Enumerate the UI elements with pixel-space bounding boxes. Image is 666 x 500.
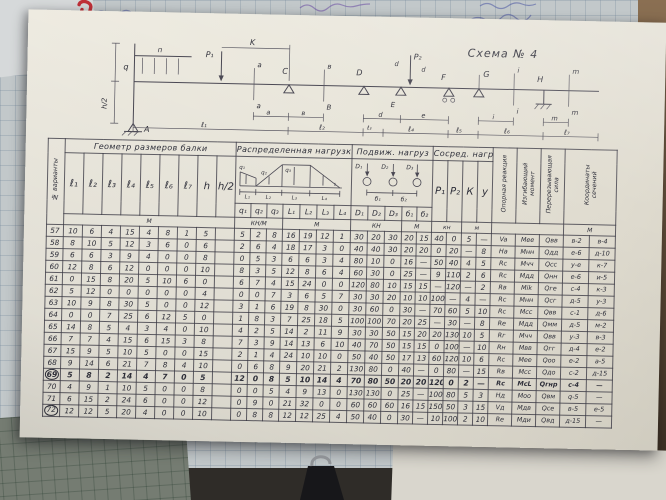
cell: 12 — [316, 230, 333, 242]
cell: 15 — [81, 273, 100, 285]
cell: 0 — [100, 285, 119, 297]
cell: 5 — [138, 298, 157, 310]
cell: 15 — [156, 335, 175, 347]
cell: — — [586, 416, 612, 429]
cell: 30 — [400, 304, 415, 316]
cell: 40 — [431, 232, 446, 244]
cell: 2 — [331, 362, 348, 374]
cell: 5 — [196, 227, 215, 239]
cell: 4 — [156, 323, 175, 335]
cell: е-2 — [561, 355, 587, 368]
cell: 50 — [382, 327, 399, 339]
cell: 8 — [158, 227, 177, 239]
cell: 0 — [62, 273, 81, 285]
concentrated-col-label: у — [477, 161, 493, 222]
cell: 60 — [347, 399, 364, 411]
cell: Rг — [489, 330, 513, 342]
cell: 10 — [196, 263, 215, 275]
cell: с-2 — [561, 367, 587, 380]
cell: 15 — [194, 347, 213, 359]
distributed-col-label: L₃ — [317, 205, 334, 219]
cell: 12 — [120, 262, 139, 274]
cell: 20 — [446, 245, 461, 257]
cell: 4 — [99, 333, 118, 345]
cell: 1 — [249, 301, 265, 313]
cell: 50 — [431, 256, 446, 268]
cell: 16 — [282, 229, 299, 241]
cell: 4 — [264, 349, 280, 361]
cell: 100 — [444, 341, 459, 353]
cell: 0 — [247, 373, 263, 385]
cell: 20 — [383, 291, 400, 303]
cell: 40 — [365, 351, 382, 363]
variant-number: 63 — [49, 298, 58, 307]
svg-text:d: d — [421, 66, 426, 74]
cell: 30 — [349, 291, 366, 303]
cell: 2 — [248, 325, 264, 337]
cell: Rс — [491, 270, 515, 283]
cell: 20 — [367, 231, 384, 243]
cell: 100 — [430, 292, 445, 304]
cell: м-2 — [588, 320, 614, 333]
cell: 0 — [384, 255, 401, 267]
cell: 0 — [429, 364, 444, 376]
cell: — — [473, 377, 488, 389]
cell: Rв — [490, 282, 514, 294]
cell: — — [413, 388, 428, 400]
cell: 21 — [118, 358, 137, 370]
svg-text:e: e — [421, 112, 425, 120]
cell: е-6 — [563, 271, 589, 284]
cell: 8 — [193, 384, 212, 396]
svg-text:L₃: L₃ — [291, 195, 297, 201]
cell: 70 — [430, 304, 445, 316]
cell: 5 — [460, 305, 475, 317]
variant-number: 72 — [44, 405, 58, 416]
cell: 10 — [157, 275, 176, 287]
svg-text:P₁: P₁ — [206, 50, 214, 59]
cell: 4 — [139, 226, 158, 238]
svg-text:А: А — [143, 125, 150, 134]
distributed-col-label: L₂ — [300, 205, 317, 219]
cell: 0 — [330, 386, 347, 398]
cell: 0 — [177, 239, 196, 251]
cell: 9 — [264, 337, 280, 349]
cell: 100 — [428, 388, 443, 400]
variant-number: 65 — [48, 322, 57, 331]
cell: 8 — [100, 273, 119, 285]
cell: 0 — [446, 233, 461, 245]
cell: 12 — [282, 265, 299, 277]
cell: 10 — [63, 225, 82, 237]
distributed-load-sketch: q₁ q₂ q₃ L₁ L₂ L₃ L₄ — [237, 157, 350, 201]
cell: 14 — [117, 370, 136, 383]
cell: 4 — [333, 266, 350, 278]
cell: 4 — [265, 277, 281, 289]
cell: 8 — [63, 237, 82, 249]
cell: Мвв — [513, 342, 537, 355]
cell: 0 — [330, 398, 347, 410]
cell: 20 — [429, 328, 444, 340]
cell: 130 — [347, 387, 364, 399]
cell: 0 — [231, 396, 247, 408]
geometry-col-label: ℓ₂ — [83, 153, 103, 214]
geometry-col-label: ℓ₃ — [102, 153, 122, 214]
cell: 10 — [459, 353, 474, 365]
cell: 50 — [443, 401, 458, 413]
svg-text:D₃: D₃ — [406, 164, 414, 171]
cell: 4 — [175, 359, 194, 371]
cell: у-3 — [561, 331, 587, 344]
cell: 120 — [444, 353, 459, 365]
cell: 7 — [281, 313, 298, 325]
cell: 70 — [365, 339, 382, 351]
svg-text:б₁: б₁ — [375, 196, 382, 203]
cell: 0 — [383, 303, 400, 315]
cell: 5 — [474, 329, 489, 341]
cell: 15 — [79, 393, 98, 405]
svg-text:m: m — [572, 68, 579, 76]
cell: 10 — [459, 329, 474, 341]
cell: 5 — [138, 274, 157, 286]
cell: 7 — [249, 277, 265, 289]
variant-number: 60 — [49, 262, 58, 271]
concentrated-col-label: P₂ — [447, 161, 463, 222]
row-number: 60 — [46, 260, 63, 272]
svg-text:ℓ₁: ℓ₁ — [200, 121, 207, 129]
cell: 15 — [281, 277, 298, 289]
cell: 8 — [475, 317, 490, 329]
svg-text:a: a — [256, 102, 260, 110]
cell: 70 — [383, 315, 400, 327]
cell: 15 — [118, 334, 137, 346]
cell: 0 — [138, 286, 157, 298]
rotated-header: Опорная реакция — [492, 148, 518, 223]
geometry-col-label: ℓ₇ — [178, 155, 198, 216]
cell: 3 — [250, 265, 266, 277]
cell: 1 — [333, 230, 350, 242]
cell: 5 — [193, 371, 212, 384]
cell: 30 — [119, 298, 138, 310]
cell: 10 — [297, 350, 314, 362]
row-number: 59 — [46, 248, 63, 260]
cell: 14 — [280, 325, 297, 337]
cell: 5 — [176, 311, 195, 323]
svg-text:B: B — [326, 104, 331, 112]
cell: 24 — [117, 394, 136, 406]
cell: 0 — [443, 377, 458, 389]
cell: 8 — [264, 361, 280, 373]
cell: 5 — [99, 345, 118, 357]
cell: 2 — [458, 413, 473, 425]
cell: 3 — [175, 335, 194, 347]
cell: 30 — [398, 412, 413, 424]
cell: 8 — [80, 321, 99, 333]
cell: 6 — [196, 239, 215, 251]
variant-number-header: № варианты — [47, 138, 66, 224]
cell: — — [416, 268, 431, 280]
distributed-col-label: L₄ — [334, 205, 351, 219]
cell: 4 — [118, 322, 137, 334]
cell: 6 — [158, 239, 177, 251]
cell: 4 — [232, 324, 248, 336]
unit-label: кн — [432, 221, 462, 233]
cell: 20 — [117, 406, 136, 418]
cell: 30 — [366, 291, 383, 303]
cell: 0 — [231, 408, 247, 420]
cell: 80 — [365, 363, 382, 375]
cell: — — [460, 281, 475, 293]
cell — [212, 384, 231, 396]
cell: 60 — [350, 267, 367, 279]
cell: 10 — [194, 359, 213, 371]
cell: 20 — [119, 274, 138, 286]
beam-schematic: Схема № 4 h/2 А q п P₁ K a a — [38, 16, 656, 149]
row-number: 72 — [43, 404, 60, 416]
variant-number: 62 — [49, 286, 58, 295]
cell: 10 — [474, 341, 489, 353]
cell: Мдд — [514, 318, 538, 330]
cell: — — [459, 341, 474, 353]
geometry-col-label: h/2 — [216, 156, 236, 217]
cell: 70 — [347, 375, 364, 387]
distributed-col-label: q₃ — [267, 204, 283, 218]
cell: 6 — [474, 353, 489, 365]
cell: 5 — [461, 233, 476, 245]
svg-text:ℓ₇: ℓ₇ — [563, 129, 570, 137]
cell: 2 — [234, 240, 250, 252]
cell: 10 — [314, 350, 331, 362]
cell: 1 — [98, 382, 117, 394]
cell: 0 — [158, 263, 177, 275]
cell — [214, 288, 233, 300]
cell: 9 — [331, 326, 348, 338]
svg-text:i: i — [516, 108, 518, 116]
cell: Мee — [515, 234, 539, 246]
cell: 8 — [100, 297, 119, 309]
variant-number: 64 — [48, 310, 57, 319]
cell: 25 — [313, 410, 330, 422]
cell: Qвв — [537, 331, 561, 344]
cell: 0 — [176, 299, 195, 311]
cell: На — [491, 246, 515, 258]
cell: 60 — [429, 352, 444, 364]
svg-text:d: d — [394, 60, 399, 68]
cell: 8 — [156, 359, 175, 371]
cell: 30 — [350, 231, 367, 243]
cell: 40 — [350, 243, 367, 255]
moving-col-label: б₁ — [402, 207, 417, 221]
cell: — — [586, 380, 612, 393]
cell: 2 — [297, 326, 314, 338]
svg-text:L₁: L₁ — [244, 194, 249, 200]
rotated-header-label: Перерезывающая сила — [545, 153, 561, 215]
cell: 20 — [400, 316, 415, 328]
cell: д-15 — [560, 415, 586, 428]
cell: с-4 — [562, 283, 588, 296]
svg-text:a: a — [266, 108, 270, 116]
cell: 6 — [316, 266, 333, 278]
cell: 5 — [101, 237, 120, 249]
cell: 6 — [176, 275, 195, 287]
cell: 3 — [248, 337, 264, 349]
row-number: 67 — [44, 344, 61, 356]
cell: 24 — [280, 349, 297, 361]
variant-number: 70 — [47, 382, 56, 391]
cell: Rе — [488, 414, 512, 427]
cell: 0 — [431, 244, 446, 256]
cell: 10 — [82, 237, 101, 249]
cell: 7 — [80, 333, 99, 345]
cell: д-5 — [562, 295, 588, 308]
cell: 0 — [175, 347, 194, 359]
cell: 40 — [446, 257, 461, 269]
cell: Мнн — [515, 246, 539, 258]
cell: 60 — [366, 303, 383, 315]
cell: Qоо — [537, 355, 561, 368]
cell: 21 — [314, 362, 331, 374]
cell: 4 — [461, 257, 476, 269]
cell: 0 — [81, 309, 100, 321]
cell: 6 — [136, 394, 155, 406]
cell: в-4 — [589, 236, 615, 249]
cell — [215, 252, 234, 264]
moving-col-label: D₂ — [368, 206, 385, 220]
svg-text:в: в — [327, 63, 331, 71]
svg-text:d: d — [378, 111, 383, 119]
cell: 0 — [331, 350, 348, 362]
cell: 0 — [176, 287, 195, 299]
cell: 5 — [458, 389, 473, 401]
cell: 0 — [247, 385, 263, 397]
cell: е-2 — [587, 344, 613, 357]
variant-number: 58 — [50, 238, 59, 247]
cell: 30 — [445, 317, 460, 329]
cell: 10 — [473, 413, 488, 425]
cell: 1 — [233, 312, 249, 324]
svg-text:C: C — [282, 67, 288, 76]
cell: 1 — [248, 349, 264, 361]
cell: 7 — [155, 371, 174, 384]
cell — [212, 396, 231, 408]
cell: 9 — [61, 357, 80, 369]
cell: 5 — [476, 257, 491, 269]
cell: 5 — [263, 385, 279, 397]
cell: 0 — [381, 387, 398, 399]
cell: 8 — [196, 251, 215, 263]
cell: 15 — [416, 232, 431, 244]
cell: а-5 — [587, 356, 613, 369]
cell: 0 — [157, 299, 176, 311]
svg-text:m: m — [551, 114, 558, 122]
cell: 20 — [401, 232, 416, 244]
rotated-header-label: Координаты сечений — [583, 154, 599, 216]
cell: 13 — [414, 352, 429, 364]
cell: Rс — [490, 306, 514, 319]
cell: 12 — [195, 299, 214, 311]
cell: 24 — [298, 278, 315, 290]
cell: 10 — [62, 297, 81, 309]
row-number: 70 — [43, 380, 60, 392]
cell: 130 — [364, 387, 381, 399]
cell: 0 — [119, 286, 138, 298]
svg-text:a: a — [257, 61, 261, 69]
svg-text:G: G — [483, 70, 489, 79]
worksheet-paper: Схема № 4 h/2 А q п P₁ K a a — [20, 9, 666, 450]
cell: 15 — [399, 340, 414, 352]
svg-text:п: п — [158, 46, 163, 54]
cell: 3 — [233, 300, 249, 312]
cell: 6 — [282, 253, 299, 265]
moving-col-label: D₁ — [351, 206, 368, 220]
svg-text:ℓ₂: ℓ₂ — [318, 123, 325, 131]
cell: 0 — [232, 360, 248, 372]
cell: 30 — [315, 302, 332, 314]
cell: 30 — [365, 327, 382, 339]
cell: 8 — [299, 266, 316, 278]
cell: 15 — [413, 400, 428, 412]
cell: 15 — [473, 401, 488, 413]
cell: 15 — [120, 226, 139, 238]
cell: 8 — [263, 373, 279, 385]
cell: 8 — [298, 302, 315, 314]
row-number: 65 — [44, 320, 61, 332]
cell: 4 — [279, 385, 296, 397]
svg-text:H: H — [537, 75, 543, 84]
cell: 30 — [349, 303, 366, 315]
cell: 40 — [364, 411, 381, 423]
schematic-title: Схема № 4 — [468, 47, 539, 61]
cell: 20 — [398, 376, 413, 388]
cell: 60 — [364, 399, 381, 411]
cell: 10 — [118, 346, 137, 358]
svg-text:F: F — [441, 73, 446, 82]
cell: 50 — [381, 375, 398, 387]
cell: 0 — [332, 278, 349, 290]
cell: 0 — [333, 242, 350, 254]
row-number: 71 — [43, 392, 60, 404]
cell: Qвд — [536, 415, 560, 428]
cell: — — [476, 233, 491, 245]
cell: 20 — [297, 362, 314, 374]
svg-text:q₃: q₃ — [285, 168, 292, 174]
cell: 19 — [281, 301, 298, 313]
cell: 0 — [177, 263, 196, 275]
cell: 0 — [177, 251, 196, 263]
cell: д-15 — [587, 368, 613, 381]
cell: 6 — [298, 290, 315, 302]
svg-text:в: в — [301, 109, 305, 117]
cell: д-5 — [562, 319, 588, 332]
geometry-col-label: h — [197, 155, 217, 216]
cell — [212, 372, 231, 385]
cell: 7 — [332, 290, 349, 302]
cell: Qсс — [539, 259, 563, 271]
cell: 10 — [415, 292, 430, 304]
cell: у-3 — [588, 296, 614, 309]
cell: Rс — [488, 378, 512, 391]
cell: Qсе — [536, 403, 560, 416]
cell: 50 — [382, 339, 399, 351]
variant-number: 59 — [50, 250, 59, 259]
cell: 14 — [80, 357, 99, 369]
cell: — — [445, 293, 460, 305]
cell: 5 — [99, 321, 118, 333]
cell — [213, 324, 232, 336]
cell: 6 — [63, 249, 82, 261]
cell: 11 — [314, 326, 331, 338]
binder-clip — [286, 450, 356, 500]
